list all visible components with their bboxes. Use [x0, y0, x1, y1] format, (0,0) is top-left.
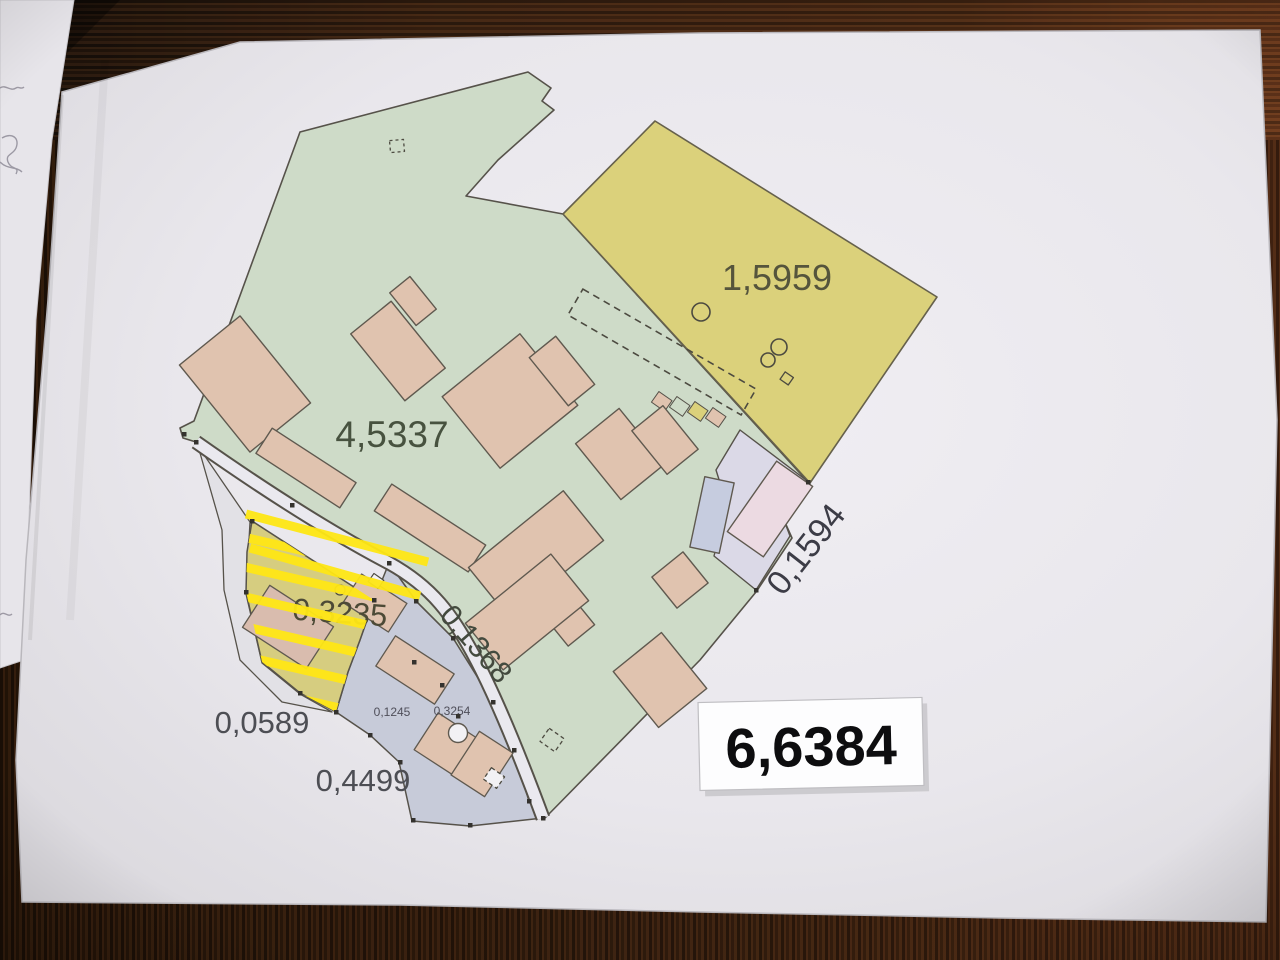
photo-scene: 1,5959 4,5337 0,1594 0,1368 0,3235 0,058… [0, 0, 1280, 960]
vignette-overlay [0, 0, 1280, 960]
